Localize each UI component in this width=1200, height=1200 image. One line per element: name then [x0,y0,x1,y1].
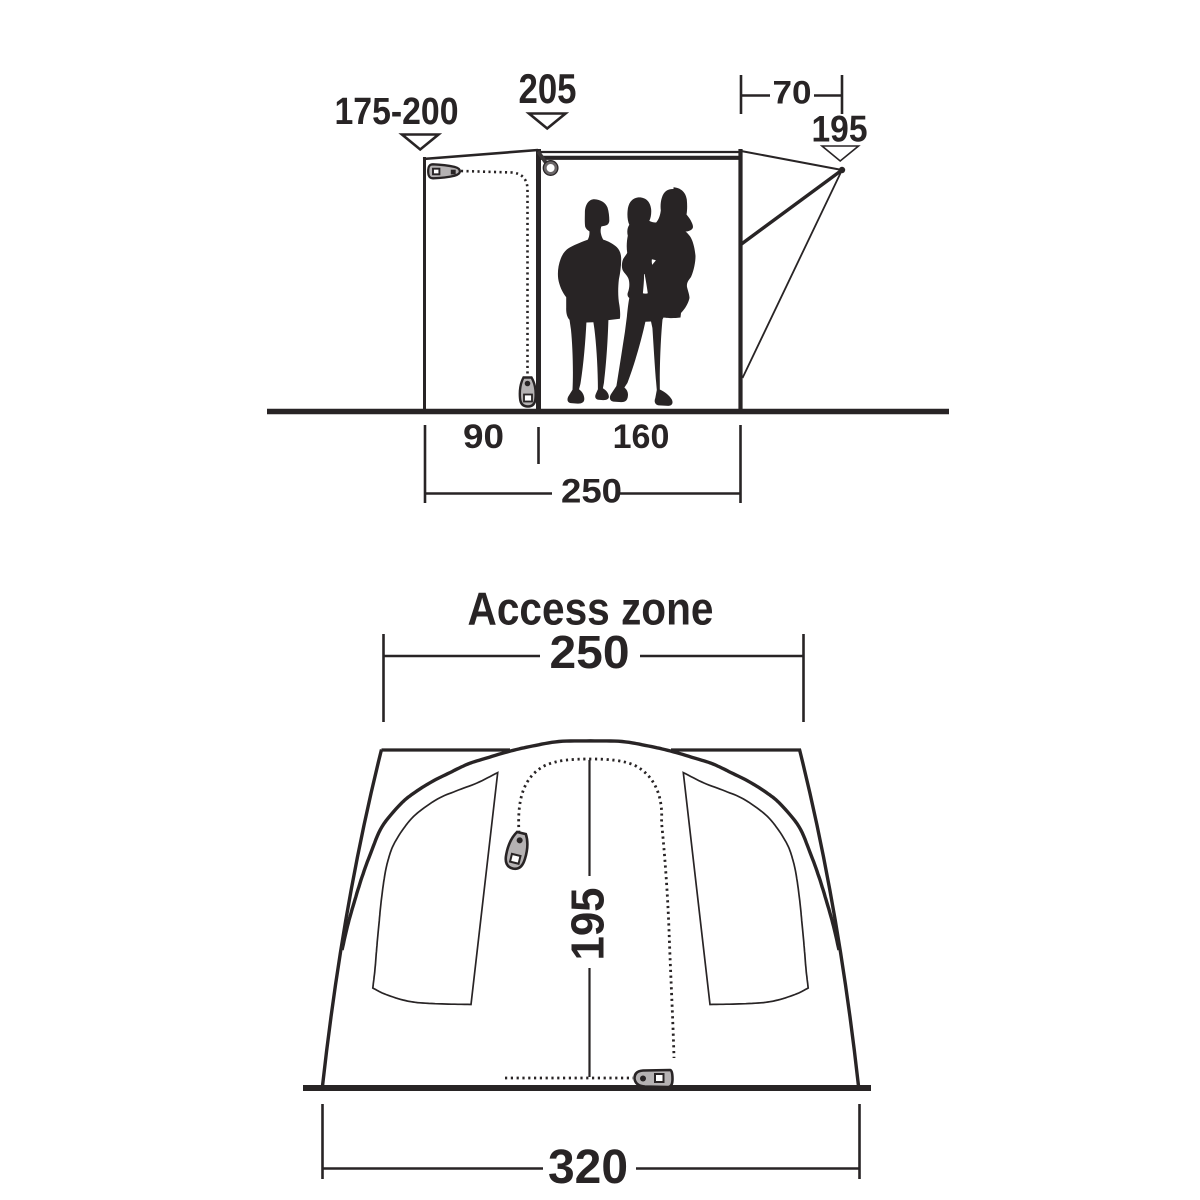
svg-text:160: 160 [613,418,670,456]
svg-text:175-200: 175-200 [335,91,459,133]
svg-text:250: 250 [561,473,622,511]
svg-text:195: 195 [812,109,868,150]
svg-text:250: 250 [550,626,630,678]
svg-text:90: 90 [463,418,504,456]
svg-text:195: 195 [562,888,614,961]
svg-text:205: 205 [519,65,577,112]
svg-text:320: 320 [548,1141,628,1194]
svg-text:70: 70 [773,75,812,111]
